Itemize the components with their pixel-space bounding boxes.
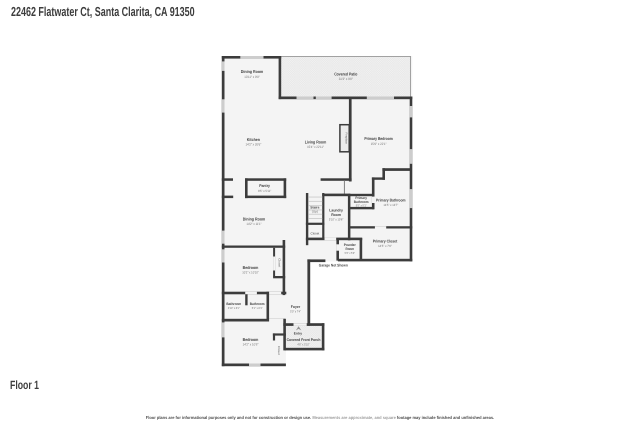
svg-text:Closet: Closet xyxy=(278,258,282,267)
svg-text:5'10" x 10'8": 5'10" x 10'8" xyxy=(329,218,343,222)
svg-text:Primary Closet: Primary Closet xyxy=(373,238,398,243)
svg-text:Living Room: Living Room xyxy=(305,139,327,144)
svg-text:Laundry: Laundry xyxy=(329,209,343,213)
svg-text:14'2" x 11'1": 14'2" x 11'1" xyxy=(246,222,262,226)
svg-text:Entry: Entry xyxy=(294,331,302,335)
svg-text:15'4" x 22'11": 15'4" x 22'11" xyxy=(307,145,325,149)
svg-text:14'5" x 13'7": 14'5" x 13'7" xyxy=(383,203,398,207)
svg-text:(Up): (Up) xyxy=(312,210,318,214)
svg-text:5'0" x 7'4": 5'0" x 7'4" xyxy=(290,309,301,313)
svg-text:Dining Room: Dining Room xyxy=(243,217,266,222)
svg-text:10'2" x 10'10": 10'2" x 10'10" xyxy=(242,271,259,275)
svg-text:Pantry: Pantry xyxy=(259,183,270,188)
svg-text:Primary Bathroom: Primary Bathroom xyxy=(376,197,406,202)
svg-text:8'5" x 5'11": 8'5" x 5'11" xyxy=(258,189,271,193)
svg-text:Room: Room xyxy=(331,213,341,217)
svg-text:5'1" x 8'1": 5'1" x 8'1" xyxy=(252,306,263,310)
svg-text:14'2" x 10'8": 14'2" x 10'8" xyxy=(243,343,260,347)
svg-text:4'6" x 5'10": 4'6" x 5'10" xyxy=(297,343,309,347)
svg-text:Primary Bedroom: Primary Bedroom xyxy=(364,136,393,141)
svg-text:Foyer: Foyer xyxy=(291,305,301,309)
svg-text:31'3" x 9'8": 31'3" x 9'8" xyxy=(339,77,354,81)
svg-text:Covered Front Porch: Covered Front Porch xyxy=(287,338,321,342)
svg-text:Bedroom: Bedroom xyxy=(243,265,259,270)
svg-text:Fireplace: Fireplace xyxy=(345,132,349,144)
svg-text:5'5" x 5'1": 5'5" x 5'1" xyxy=(356,204,367,208)
svg-text:14'5" x 7'6": 14'5" x 7'6" xyxy=(378,244,392,248)
svg-text:Covered Patio: Covered Patio xyxy=(334,71,358,76)
svg-text:Closet: Closet xyxy=(311,231,320,235)
svg-text:4'10" x 8'1": 4'10" x 8'1" xyxy=(228,306,240,310)
svg-text:Closet: Closet xyxy=(277,346,281,355)
svg-text:Dining Room: Dining Room xyxy=(241,69,264,74)
svg-text:Bedroom: Bedroom xyxy=(243,337,259,342)
svg-text:Garage Not Shown: Garage Not Shown xyxy=(319,264,349,268)
svg-text:14'2" x 20'6": 14'2" x 20'6" xyxy=(246,143,263,147)
svg-text:Kitchen: Kitchen xyxy=(247,137,261,142)
svg-text:15'6" x 22'1": 15'6" x 22'1" xyxy=(371,142,388,146)
svg-text:5'3" x 5'9": 5'3" x 5'9" xyxy=(345,251,355,255)
svg-text:13'11" x 9'8": 13'11" x 9'8" xyxy=(244,75,260,79)
